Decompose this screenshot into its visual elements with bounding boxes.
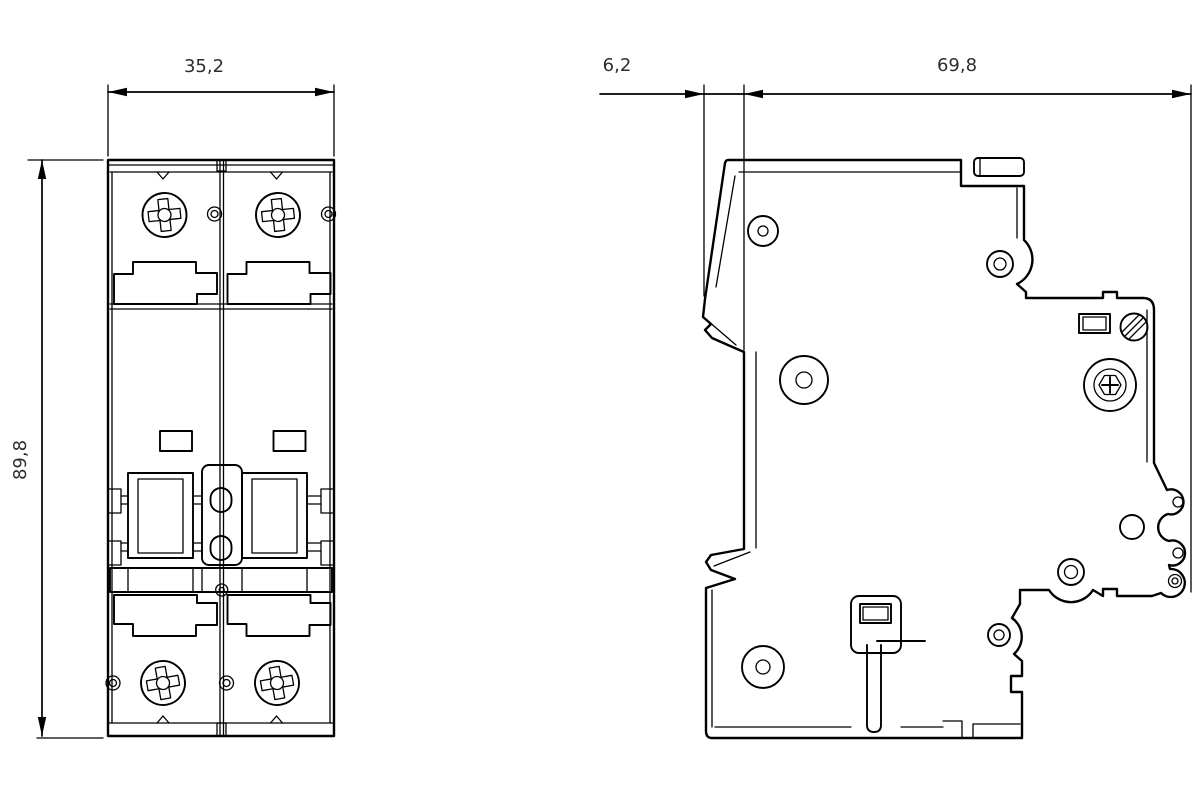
terminal-screw-top-right [254,191,302,239]
side-clip-boss-icons [106,207,336,690]
rivet-top-left [748,216,778,246]
tie-bar-segment-lines [128,568,307,592]
side-inner-lines [708,172,1147,738]
dimension-label-front-width: 35,2 [184,56,224,77]
clamp-screw-icon [1084,359,1136,411]
handle-pin-lower [211,536,232,560]
side-view [703,158,1185,738]
boss-top-right [987,251,1013,277]
arrowhead-up [38,160,46,179]
technical-drawing-canvas: 35,2 6,2 69,8 89,8 [0,0,1200,800]
top-terminal-block-left [114,262,217,304]
label-window-right [274,431,306,451]
arrowhead-rail-right [685,90,704,98]
dimension-drawing-svg: 35,2 6,2 69,8 89,8 [0,0,1200,800]
pole-divider-line [220,160,224,736]
handle-pin-upper [211,488,232,512]
dimension-label-front-height: 89,8 [10,440,31,480]
boss-lower-right-1 [1058,559,1084,585]
terminal-screw-bottom-right [252,658,303,709]
side-body-outline [703,160,1185,738]
edge-tab [108,489,121,513]
toggle-handle-left-inner [138,479,183,553]
front-view [106,160,336,736]
terminal-window-inner [1083,317,1106,330]
top-terminal-block-right [228,262,331,304]
toggle-handle-right-inner [252,479,297,553]
slotted-screw-icon [1121,314,1148,341]
cover-tab [974,158,1024,176]
terminal-screw-top-left [140,191,188,239]
mounting-hole [1120,515,1144,539]
toggle-zone [108,465,334,596]
arrowhead-down [38,717,46,736]
extension-lines-front [28,85,334,738]
handle-center-column [202,465,242,565]
terminal-screw-bottom-left [138,658,189,709]
dimension-label-side-rail-offset: 6,2 [603,55,632,76]
bottom-terminal-block-right [228,595,331,636]
boss-lower-right-2 [988,624,1010,646]
front-body-outline [108,160,334,736]
tie-bar-center-pin [216,584,228,596]
arrowhead-right [315,88,334,96]
bottom-pole-piece [851,596,925,732]
edge-tab [108,541,121,565]
dimension-label-side-depth: 69,8 [937,55,977,76]
arrowhead-left [108,88,127,96]
handle-rail-lines [121,496,321,551]
bottom-center-tab [217,723,226,736]
bottom-terminal-block-left [114,595,217,636]
label-window-left [160,431,192,451]
edge-tab [321,489,334,513]
handle-tie-bar [110,568,332,592]
arrowhead-depth-left [744,90,763,98]
rivet-bottom-left [742,646,784,688]
arrowhead-depth-right [1172,90,1191,98]
rivet-middle-left [780,356,828,404]
front-edge-inner-lines [108,165,334,723]
edge-tab [321,541,334,565]
